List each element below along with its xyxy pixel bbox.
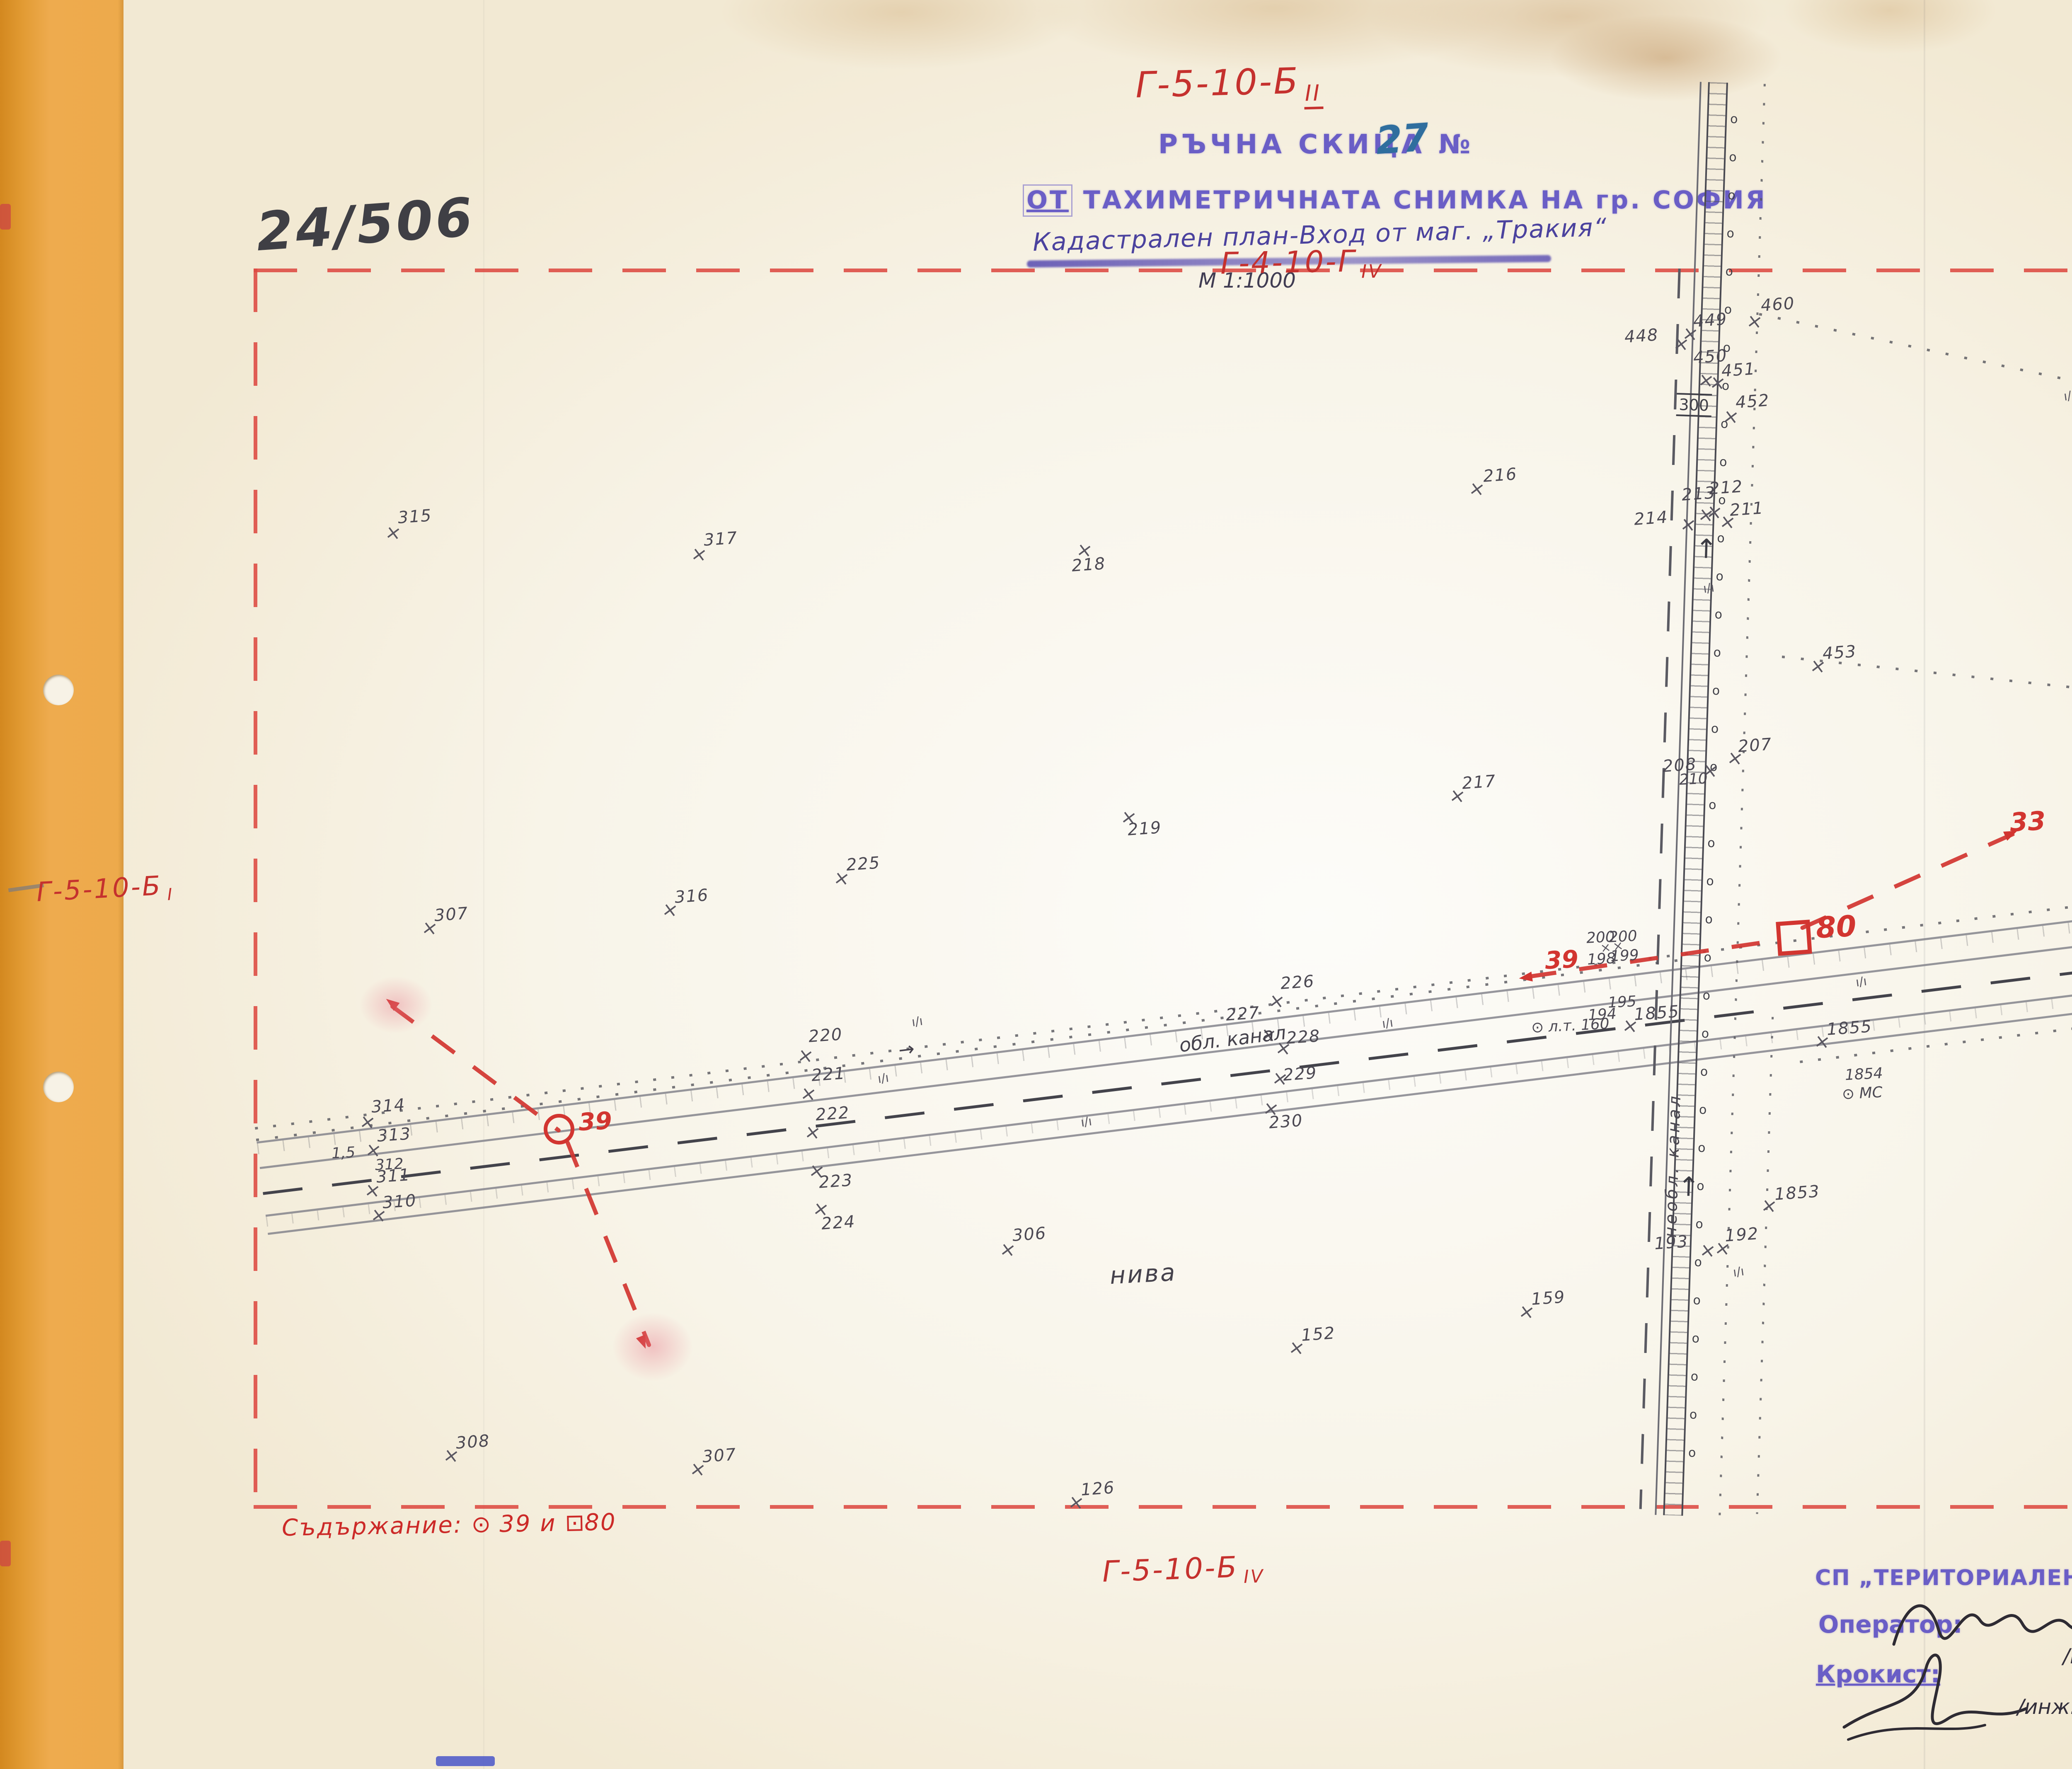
legend-item1: 39: [499, 1510, 532, 1538]
canal-circle-icon: o: [1717, 531, 1725, 546]
canal-circle-icon: o: [1714, 607, 1722, 622]
survey-point-label: 308: [455, 1431, 490, 1453]
tick-mark: ı/ı: [877, 1070, 890, 1086]
survey-point-label: 218: [1071, 554, 1106, 576]
canal-circle-icon: o: [1711, 721, 1719, 736]
survey-point-label: 227: [1225, 1003, 1260, 1025]
canal-circle-icon: o: [1716, 569, 1723, 584]
tick-mark: ı/ı: [1702, 580, 1715, 596]
red-arrowhead: [1518, 972, 1533, 983]
survey-point-label: 1853: [1774, 1182, 1821, 1204]
survey-point-label: 228: [1285, 1026, 1321, 1048]
arrow-left-label: 39: [1544, 945, 1579, 975]
legend-label: Съдържание:: [281, 1511, 463, 1542]
canal-circle-icon: o: [1700, 1065, 1708, 1079]
survey-point-label: 221: [811, 1064, 846, 1085]
canal-circle-icon: o: [1709, 798, 1716, 813]
survey-point-label: 307: [702, 1445, 737, 1467]
canal-circle-column: oooooooooooooooooooooooooooooooooooo: [1681, 81, 1830, 86]
canal-circle-icon: o: [1690, 1369, 1698, 1384]
canal-circle-icon: o: [1693, 1293, 1701, 1308]
canal-circle-icon: o: [1699, 1103, 1707, 1118]
canal-circle-icon: o: [1702, 988, 1710, 1003]
survey-point-label: 152: [1300, 1324, 1336, 1345]
canal-circle-icon: o: [1692, 1331, 1699, 1346]
canal-circle-icon: o: [1713, 645, 1721, 660]
tick-mark: ×: [1612, 938, 1624, 954]
marker-circle-label: 39: [578, 1106, 612, 1136]
survey-point-label: 316: [674, 886, 709, 907]
canal: oooooooooooooooooooooooooooooooooooo ↑ ↑…: [1636, 81, 1830, 1519]
map-text: ⊙ МС: [1842, 1084, 1883, 1103]
flow-arrow-icon: ↑: [1694, 534, 1718, 565]
tick-mark: ×: [1600, 940, 1612, 956]
canal-circle-icon: o: [1728, 188, 1736, 203]
tick-mark: ı/ı: [1855, 974, 1868, 990]
arrow-ne-label: 33: [2009, 806, 2046, 837]
survey-point-label: 207: [1737, 735, 1772, 756]
tick-mark: ı/ı: [1381, 1015, 1394, 1031]
survey-point-label: 126: [1080, 1478, 1115, 1500]
survey-point-label: 313: [376, 1124, 411, 1146]
survey-point-label: 314: [370, 1095, 406, 1117]
survey-point-label: 214: [1633, 508, 1668, 529]
survey-point-label: 225: [845, 853, 881, 875]
map-text: 1,5: [331, 1144, 356, 1162]
survey-point-label: 230: [1268, 1111, 1303, 1133]
survey-point-label: 217: [1461, 772, 1496, 793]
survey-point-label: 306: [1012, 1224, 1047, 1245]
canal-dotted-line-2: [1756, 1017, 1774, 1514]
canal-circle-icon: o: [1695, 1217, 1703, 1232]
krokist-signature: [1840, 1640, 2072, 1748]
survey-point-label: 1855: [1826, 1017, 1873, 1039]
map-text: →: [897, 1037, 916, 1061]
canal-circle-icon: o: [1705, 912, 1713, 927]
map-text: нива: [1109, 1258, 1177, 1290]
canal-circle-icon: o: [1706, 874, 1714, 889]
canal-dotted-line: [1719, 84, 1766, 1517]
square-symbol-icon: ⊡: [565, 1509, 585, 1537]
legend-conjunction: и: [540, 1510, 557, 1537]
legend-item2: 80: [584, 1509, 617, 1536]
survey-point-label: 223: [818, 1171, 853, 1192]
survey-point-label: 193: [1653, 1232, 1689, 1254]
survey-point-label: 453: [1822, 642, 1857, 663]
tick-mark: ı/ı: [2063, 388, 2072, 404]
canal-circle-icon: o: [1712, 683, 1720, 698]
canal-circle-icon: o: [1688, 1445, 1696, 1460]
survey-point-label: 211: [1729, 499, 1764, 520]
culvert-width-label: 300: [1676, 393, 1712, 417]
pink-smudge: [609, 1309, 696, 1384]
survey-point-cross: ×: [796, 1043, 815, 1068]
map-text: 210: [1679, 770, 1708, 789]
survey-point-label: 212: [1708, 477, 1743, 499]
survey-point-label: 449: [1692, 310, 1728, 331]
survey-point-label: 216: [1482, 465, 1518, 486]
survey-point-label: 451: [1721, 359, 1756, 381]
survey-point-label: 452: [1735, 391, 1770, 412]
map-canvas: oooooooooooooooooooooooooooooooooooo ↑ ↑…: [0, 0, 2072, 1769]
tick-mark: ı/ı: [1732, 1264, 1745, 1280]
survey-point-label: 224: [821, 1212, 856, 1234]
survey-point-cross: ×: [799, 1082, 818, 1106]
circle-symbol-icon: ⊙: [471, 1511, 491, 1538]
tick-mark: ı/ı: [911, 1014, 924, 1029]
survey-point-label: 317: [703, 528, 738, 550]
survey-point-label: 229: [1282, 1063, 1317, 1085]
survey-point-label: 192: [1724, 1224, 1759, 1246]
survey-point-label: 219: [1127, 818, 1162, 840]
canal-circle-icon: o: [1701, 1026, 1709, 1041]
canal-circle-icon: o: [1730, 112, 1738, 127]
map-text: 1854: [1844, 1065, 1883, 1084]
red-dashed-line: [1800, 831, 2016, 930]
canal-circle-icon: o: [1729, 150, 1737, 165]
canal-circle-icon: o: [1725, 264, 1733, 279]
survey-point-label: 315: [397, 506, 432, 528]
survey-point-label: 226: [1280, 972, 1315, 993]
canal-circle-icon: o: [1689, 1407, 1697, 1422]
krokist-name: /инж. Ст. Гогов/: [2017, 1695, 2072, 1719]
survey-point-cross: ×: [1679, 512, 1698, 537]
survey-point-label: 307: [433, 904, 469, 925]
survey-point-label: 1855: [1634, 1002, 1680, 1024]
canal-circle-icon: o: [1707, 836, 1715, 851]
canal-circle-icon: o: [1726, 226, 1734, 241]
survey-point-label: 448: [1624, 325, 1659, 347]
survey-point-label: 159: [1530, 1287, 1566, 1309]
survey-point-label: 310: [382, 1191, 417, 1212]
survey-point-label: 222: [815, 1103, 850, 1125]
tick-mark: ı/ı: [1080, 1114, 1093, 1130]
map-text: 312: [375, 1155, 404, 1174]
survey-point-label: 220: [808, 1025, 843, 1046]
canal-circle-icon: o: [1719, 455, 1727, 469]
survey-point-label: 460: [1760, 294, 1795, 315]
scanned-cadastral-sketch: { "page": { "sheet_number": "24/506" }, …: [0, 0, 2072, 1769]
footer-block: СП „ТЕРИТОРИАЛЕН КАДАСТЪР“-СОФИЯ Операто…: [1815, 1566, 2072, 1764]
marker-circle: [544, 1114, 574, 1145]
canal-circle-icon: o: [1698, 1141, 1706, 1156]
